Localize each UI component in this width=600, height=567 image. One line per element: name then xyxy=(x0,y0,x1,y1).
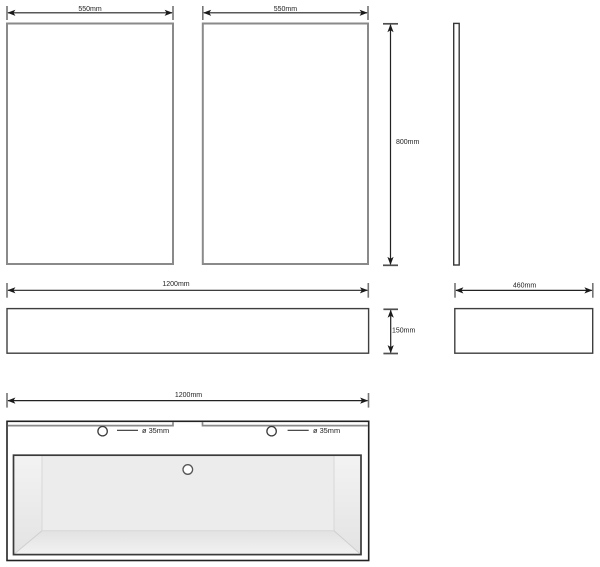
svg-text:460mm: 460mm xyxy=(513,282,537,289)
svg-text:550mm: 550mm xyxy=(78,6,102,13)
svg-text:ø 35mm: ø 35mm xyxy=(142,426,169,435)
svg-text:550mm: 550mm xyxy=(274,6,298,13)
svg-text:1200mm: 1200mm xyxy=(162,281,189,288)
svg-text:800mm: 800mm xyxy=(396,139,420,146)
svg-text:1200mm: 1200mm xyxy=(175,392,202,399)
svg-text:ø 35mm: ø 35mm xyxy=(313,426,340,435)
svg-text:150mm: 150mm xyxy=(392,328,416,335)
